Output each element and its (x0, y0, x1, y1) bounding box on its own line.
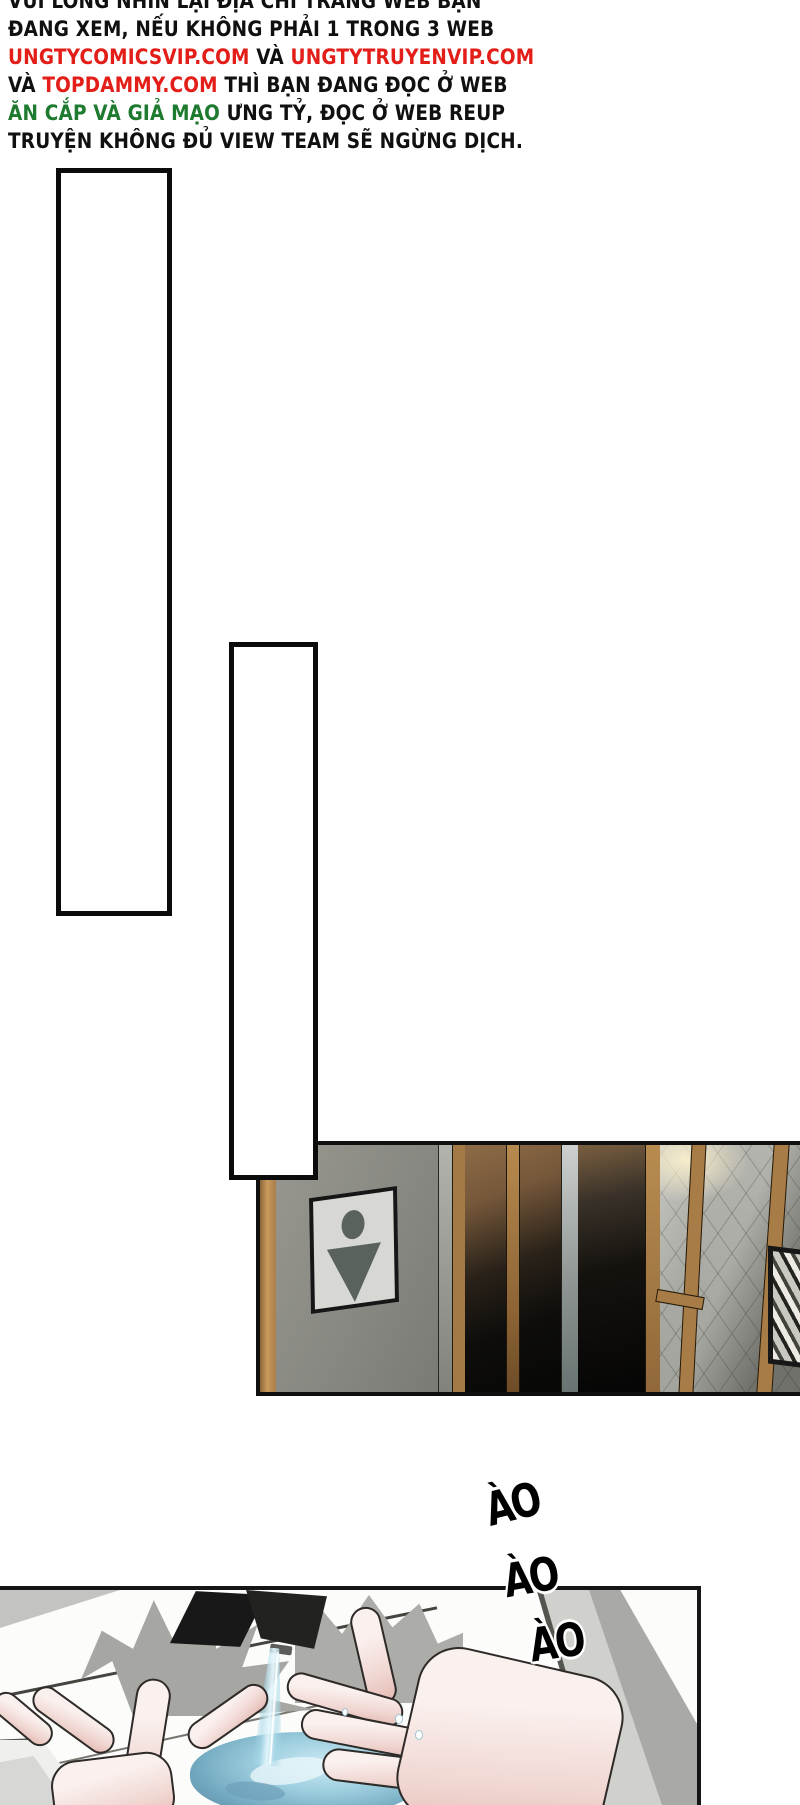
restroom-person-icon (327, 1242, 382, 1305)
sfx-ao-1: ÀO (480, 1471, 545, 1536)
speech-box-1 (56, 168, 172, 916)
left-hand-palm (48, 1749, 178, 1805)
warning-text: VUI LÒNG NHÌN LẠI ĐỊA CHỈ TRANG WEB BẠN … (8, 0, 534, 155)
warning-segment: TRUYỆN KHÔNG ĐỦ VIEW TEAM SẼ NGỪNG DỊCH. (8, 129, 523, 153)
water-droplet (395, 1714, 403, 1724)
sfx-ao-2: ÀO (499, 1546, 561, 1608)
warning-highlight: ĂN CẮP VÀ GIẢ MẠO (8, 101, 220, 125)
sfx-ao-3: ÀO (526, 1612, 587, 1673)
warning-line: ĂN CẮP VÀ GIẢ MẠO ƯNG TỶ, ĐỌC Ở WEB REUP (8, 99, 534, 127)
silver-door-edge (561, 1145, 579, 1392)
warning-segment: VUI LÒNG NHÌN LẠI ĐỊA CHỈ TRANG WEB BẠN (8, 0, 481, 13)
restroom-sign (309, 1186, 399, 1314)
warning-segment: VÀ (8, 73, 42, 97)
speech-box-2 (229, 642, 318, 1180)
comic-page: VUI LÒNG NHÌN LẠI ĐỊA CHỈ TRANG WEB BẠN … (0, 0, 800, 1805)
warning-link-url: TOPDAMMY.COM (42, 73, 217, 97)
door-frame-strip (438, 1145, 453, 1392)
picture-content (773, 1251, 800, 1363)
warning-segment: VÀ (250, 45, 291, 69)
restroom-person-icon (341, 1209, 365, 1241)
warning-link-url: UNGTYTRUYENVIP.COM (291, 45, 535, 69)
warning-line: UNGTYCOMICSVIP.COM VÀ UNGTYTRUYENVIP.COM (8, 43, 534, 71)
warning-segment: ƯNG TỶ, ĐỌC Ở WEB REUP (220, 101, 505, 125)
warning-line: VUI LÒNG NHÌN LẠI ĐỊA CHỈ TRANG WEB BẠN (8, 0, 534, 15)
warning-segment: THÌ BẠN ĐANG ĐỌC Ở WEB (218, 73, 508, 97)
wall-picture-frame (768, 1246, 800, 1369)
sink-panel (0, 1586, 701, 1805)
corridor-photo-panel (256, 1141, 800, 1396)
water-droplet (415, 1730, 423, 1740)
water-droplet (342, 1708, 348, 1716)
dark-glass-panel (578, 1145, 645, 1392)
warning-segment: ĐANG XEM, NẾU KHÔNG PHẢI 1 TRONG 3 WEB (8, 17, 494, 41)
warning-link-url: UNGTYCOMICSVIP.COM (8, 45, 250, 69)
door-gold-stripe (506, 1145, 520, 1392)
wall-shadow-wedge (0, 1590, 120, 1628)
warning-line: ĐANG XEM, NẾU KHÔNG PHẢI 1 TRONG 3 WEB (8, 15, 534, 43)
warning-line: VÀ TOPDAMMY.COM THÌ BẠN ĐANG ĐỌC Ở WEB (8, 71, 534, 99)
warning-line: TRUYỆN KHÔNG ĐỦ VIEW TEAM SẼ NGỪNG DỊCH. (8, 127, 534, 155)
